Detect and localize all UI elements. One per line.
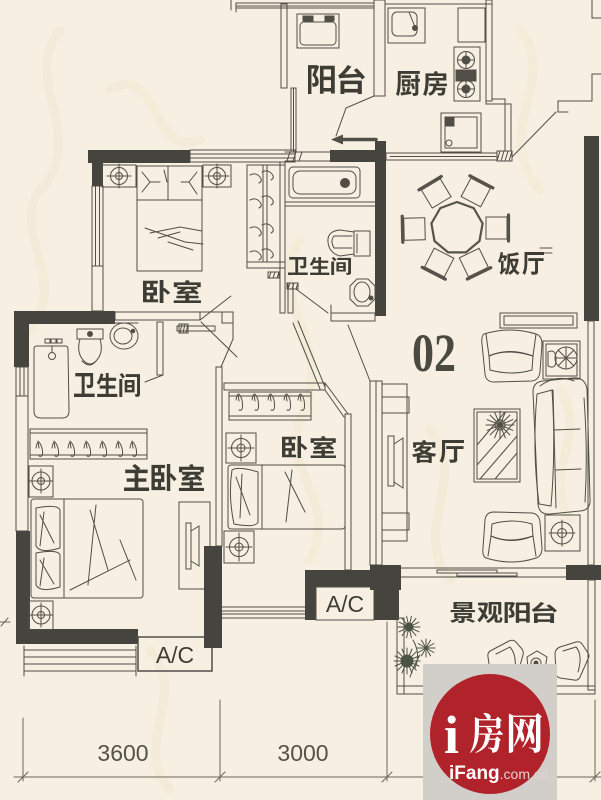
svg-text:A/C: A/C [326,591,364,617]
svg-text:3600: 3600 [97,740,148,766]
svg-text:i: i [444,705,459,765]
svg-text:A/C: A/C [156,642,194,668]
svg-text:iFang.com.cn: iFang.com.cn [449,763,549,784]
svg-text:02: 02 [412,323,456,383]
svg-text:3000: 3000 [277,740,328,766]
